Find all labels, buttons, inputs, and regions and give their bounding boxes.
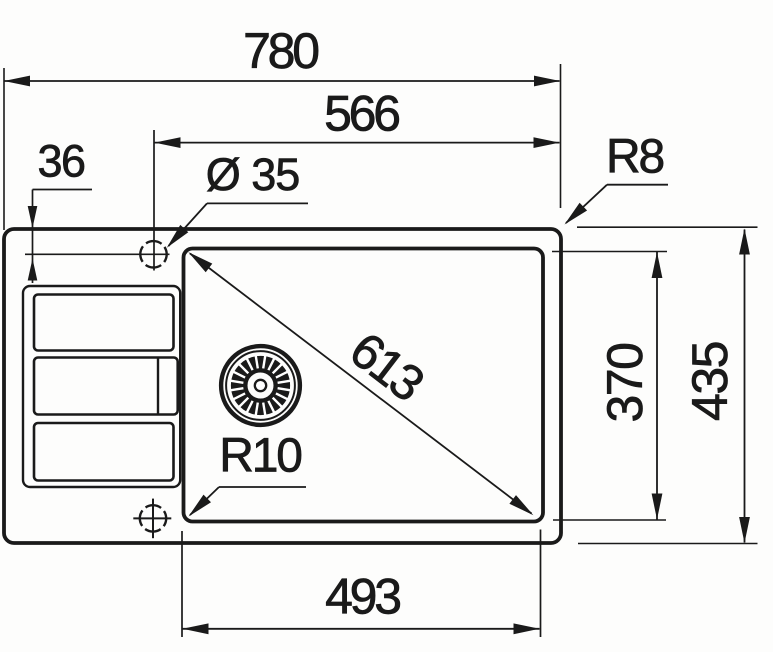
svg-text:493: 493 bbox=[325, 568, 400, 624]
svg-text:R10: R10 bbox=[219, 430, 301, 483]
svg-text:370: 370 bbox=[597, 344, 653, 423]
svg-text:566: 566 bbox=[324, 86, 399, 142]
svg-text:36: 36 bbox=[37, 136, 85, 187]
svg-text:435: 435 bbox=[682, 342, 738, 421]
svg-text:R8: R8 bbox=[606, 131, 663, 184]
svg-text:Ø 35: Ø 35 bbox=[206, 149, 300, 200]
svg-text:780: 780 bbox=[243, 23, 318, 79]
svg-text:613: 613 bbox=[340, 321, 434, 411]
